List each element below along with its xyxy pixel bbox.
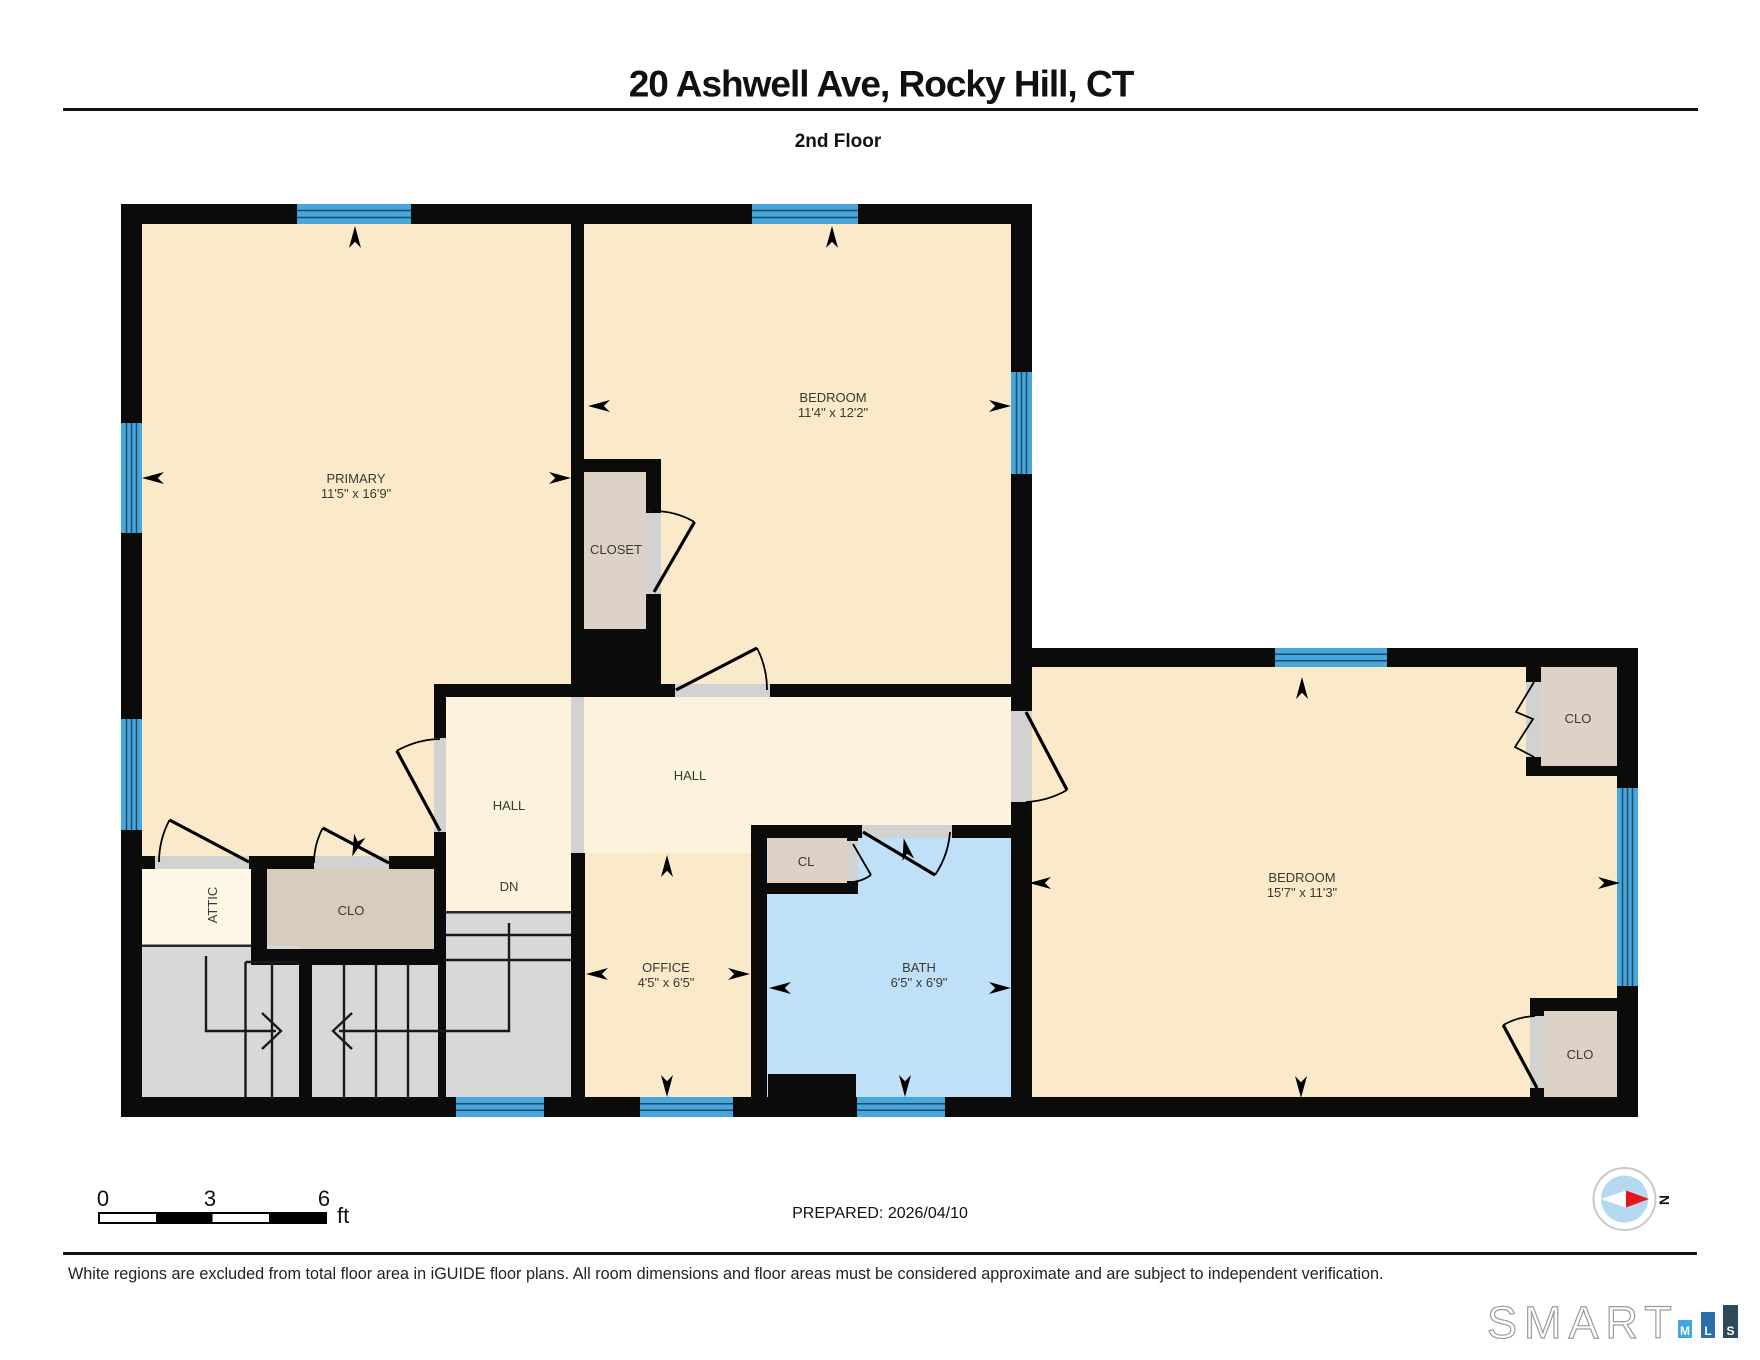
svg-text:6'5" x 6'9": 6'5" x 6'9"	[891, 975, 948, 990]
svg-text:CLO: CLO	[1565, 711, 1592, 726]
svg-text:OFFICE: OFFICE	[642, 960, 690, 975]
svg-text:L: L	[1704, 1324, 1711, 1338]
svg-text:CL: CL	[798, 854, 815, 869]
svg-text:S: S	[1726, 1324, 1734, 1338]
svg-text:BEDROOM: BEDROOM	[1268, 870, 1335, 885]
svg-text:SMART: SMART	[1487, 1297, 1679, 1348]
svg-text:CLO: CLO	[1567, 1047, 1594, 1062]
svg-text:ft: ft	[337, 1203, 349, 1228]
svg-text:HALL: HALL	[493, 798, 526, 813]
svg-text:11'4" x 12'2": 11'4" x 12'2"	[798, 405, 869, 420]
svg-text:HALL: HALL	[674, 768, 707, 783]
svg-text:White regions are excluded fro: White regions are excluded from total fl…	[68, 1265, 1383, 1283]
svg-text:BEDROOM: BEDROOM	[799, 390, 866, 405]
svg-text:BATH: BATH	[902, 960, 936, 975]
svg-text:0: 0	[97, 1186, 109, 1211]
svg-text:15'7" x 11'3": 15'7" x 11'3"	[1267, 885, 1338, 900]
svg-text:PRIMARY: PRIMARY	[327, 471, 386, 486]
svg-text:ATTIC: ATTIC	[205, 887, 220, 924]
svg-text:3: 3	[204, 1186, 216, 1211]
svg-text:2nd Floor: 2nd Floor	[795, 131, 882, 152]
svg-text:PREPARED: 2026/04/10: PREPARED: 2026/04/10	[792, 1205, 968, 1222]
svg-text:CLO: CLO	[338, 903, 365, 918]
svg-text:N: N	[1656, 1195, 1672, 1205]
svg-text:20 Ashwell Ave, Rocky Hill, CT: 20 Ashwell Ave, Rocky Hill, CT	[629, 64, 1135, 105]
svg-text:4'5" x 6'5": 4'5" x 6'5"	[638, 975, 695, 990]
svg-text:6: 6	[318, 1186, 330, 1211]
svg-text:11'5" x 16'9": 11'5" x 16'9"	[321, 486, 392, 501]
svg-text:CLOSET: CLOSET	[590, 542, 642, 557]
svg-text:DN: DN	[500, 879, 519, 894]
svg-text:M: M	[1680, 1324, 1690, 1338]
